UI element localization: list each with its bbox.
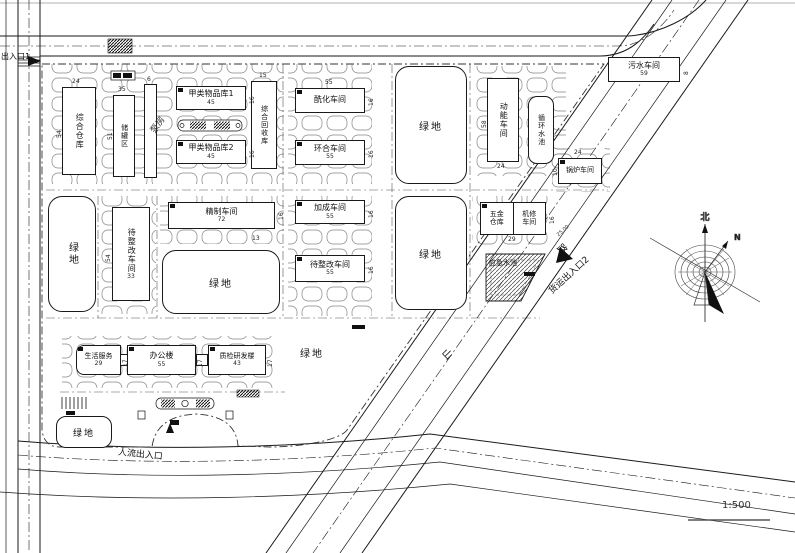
maintenance-workshop: 机修 车间	[513, 203, 546, 234]
unloading-box	[111, 71, 135, 80]
compass-north-arrow-icon	[702, 224, 708, 233]
building-office: 办公楼 55	[127, 345, 196, 375]
green-space-middle: 绿地	[162, 250, 280, 314]
building-refining-workshop: 精制车间 72	[168, 202, 275, 229]
dim: 16	[250, 96, 256, 104]
green-label-bottom: 绿地	[300, 345, 324, 360]
dim: 16	[250, 150, 256, 158]
compass-north-label: 北	[700, 211, 709, 223]
green-space-top: 绿地	[395, 66, 467, 184]
dim: 51	[108, 132, 114, 140]
green-label: 绿地	[73, 426, 95, 439]
dim: 35	[118, 87, 126, 93]
building-class-a-store-1: 甲类物品库1 45	[176, 86, 246, 110]
dim: 16	[369, 210, 375, 218]
dim: 16	[369, 266, 375, 274]
dim: 10	[553, 168, 559, 176]
compass-rose: 北 N	[650, 211, 760, 322]
dim: 8	[684, 71, 690, 75]
bike-racks	[62, 397, 86, 409]
dim: 54	[57, 130, 63, 138]
scale-label: 1:500	[722, 500, 751, 511]
green-space-left: 绿地	[48, 196, 96, 312]
dim: 54	[106, 254, 112, 262]
dim: 6	[147, 77, 151, 83]
dim: 24	[574, 150, 582, 156]
dim: 15	[259, 73, 267, 79]
dim: 16	[369, 98, 375, 106]
dim: 29	[508, 237, 516, 243]
dim: 16	[550, 216, 556, 224]
green-space-bottom-left: 绿地	[56, 416, 112, 448]
dim: 17	[123, 359, 129, 367]
building-comprehensive-warehouse: 综合仓库	[62, 87, 96, 175]
building-life-services: 生活服务 29	[76, 345, 121, 375]
top-road-crosswalk	[108, 39, 132, 53]
building-rectification-workshop-horizontal: 待整改车间 55	[295, 255, 365, 282]
dim: 24	[497, 164, 505, 170]
dim: 16	[279, 212, 285, 220]
dim: 17	[268, 359, 274, 367]
building-tank-area: 储罐区	[113, 95, 135, 177]
building-acylation-workshop: 酰化车间	[295, 88, 365, 113]
building-circulating-water-pool: 循环水池	[528, 96, 554, 164]
green-label: 绿地	[419, 118, 443, 133]
building-cyclization-workshop: 环合车间 55	[295, 140, 365, 165]
green-label: 绿地	[65, 242, 80, 266]
covered-corridor	[178, 120, 242, 131]
site-plan-canvas: 北 N 绿地 绿地 绿地 绿地 绿地 绿地 综合仓库 24 54 储罐区 35 …	[0, 0, 795, 553]
emergency-pool-label: 应急水池	[489, 258, 517, 268]
gate-ornament	[138, 398, 233, 419]
building-addition-workshop: 加成车间 55	[295, 200, 365, 224]
building-hardware-and-maintenance: 五金 仓库 机修 车间	[480, 202, 546, 235]
green-label: 绿地	[419, 246, 443, 261]
building-qc-research: 质检研发楼 43	[208, 345, 266, 375]
dim: 58	[482, 120, 488, 128]
dim: 13	[252, 236, 260, 242]
green-space-right: 绿地	[395, 196, 467, 310]
building-class-a-store-2: 甲类物品库2 45	[176, 140, 246, 164]
building-sewage-workshop: 污水车间 59	[608, 57, 680, 82]
dim: 24	[72, 79, 80, 85]
building-rectification-workshop-vertical: 待整改车间 33	[112, 207, 150, 301]
hardware-warehouse: 五金 仓库	[481, 203, 513, 234]
dim: 55	[325, 80, 333, 86]
building-boiler-workshop: 锅炉车间	[558, 158, 602, 184]
building-power-workshop: 动能车间	[487, 78, 519, 162]
entrance1-label: 出入口1	[1, 51, 30, 62]
green-label: 绿地	[209, 275, 233, 290]
compass-n-label: N	[734, 233, 741, 242]
dim: 16	[369, 150, 375, 158]
dim: 17	[198, 359, 204, 367]
